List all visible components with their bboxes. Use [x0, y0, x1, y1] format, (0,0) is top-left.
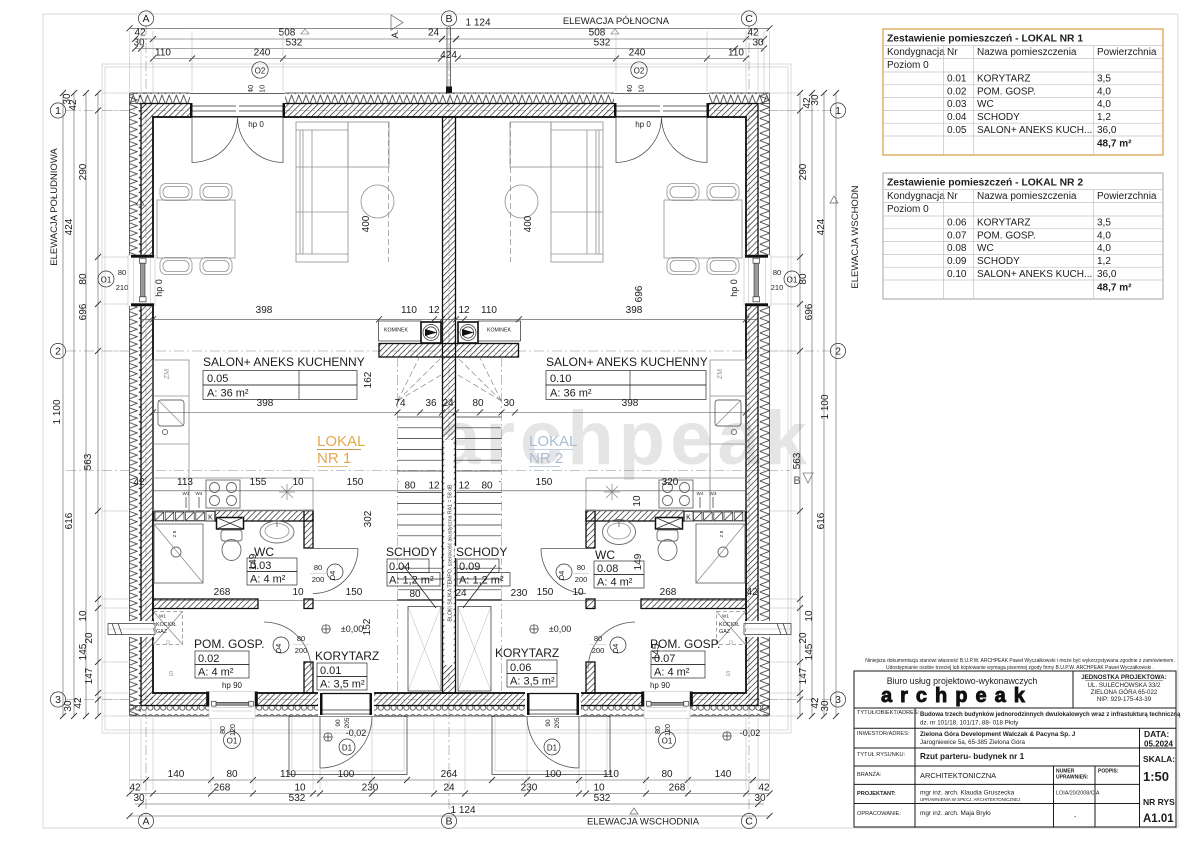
- svg-text:±0,00: ±0,00: [341, 624, 363, 634]
- svg-text:48,7 m²: 48,7 m²: [1097, 283, 1132, 294]
- svg-text:302: 302: [363, 510, 374, 527]
- svg-text:110: 110: [481, 305, 497, 316]
- svg-text:UPRAWNIEŃ:: UPRAWNIEŃ:: [1056, 773, 1089, 781]
- svg-text:2: 2: [55, 346, 61, 358]
- svg-text:1: 1: [55, 105, 61, 117]
- svg-text:POM. GOSP.: POM. GOSP.: [977, 86, 1036, 97]
- svg-text:0.05: 0.05: [207, 373, 228, 385]
- svg-text:3,5: 3,5: [1097, 218, 1111, 229]
- svg-text:30: 30: [820, 700, 831, 712]
- svg-text:290: 290: [78, 163, 89, 180]
- svg-text:SALON+ ANEKS KUCH...: SALON+ ANEKS KUCH...: [977, 269, 1092, 280]
- svg-text:205: 205: [344, 717, 351, 728]
- svg-text:0.05: 0.05: [947, 125, 967, 136]
- svg-text:Nr: Nr: [947, 191, 958, 202]
- svg-text:30: 30: [63, 700, 74, 712]
- svg-text:A: 36 m²: A: 36 m²: [207, 388, 249, 400]
- svg-text:42: 42: [73, 697, 84, 709]
- svg-text:hp 0: hp 0: [154, 279, 164, 297]
- svg-text:ELEWACJA WSCHODNIA: ELEWACJA WSCHODNIA: [587, 817, 700, 828]
- svg-text:hp 90: hp 90: [222, 681, 243, 690]
- svg-text:A: 3,5 m²: A: 3,5 m²: [510, 676, 555, 688]
- svg-text:424: 424: [64, 218, 75, 235]
- svg-text:Zestawienie pomieszczeń - LOKA: Zestawienie pomieszczeń - LOKAL NR 1: [887, 34, 1083, 45]
- svg-text:616: 616: [64, 512, 75, 529]
- svg-text:INWESTOR/ADRES:: INWESTOR/ADRES:: [857, 731, 910, 737]
- svg-text:113: 113: [177, 477, 193, 488]
- svg-text:110: 110: [155, 48, 171, 59]
- svg-text:05.2024: 05.2024: [1144, 740, 1173, 749]
- svg-text:268: 268: [214, 587, 231, 598]
- svg-text:SKALA:: SKALA:: [1143, 754, 1175, 764]
- svg-text:P: P: [729, 640, 733, 647]
- svg-text:A: 3,5 m²: A: 3,5 m²: [320, 679, 365, 691]
- svg-text:±0,00: ±0,00: [549, 624, 571, 634]
- svg-text:0.07: 0.07: [947, 230, 967, 241]
- svg-text:80: 80: [78, 273, 89, 285]
- svg-text:80: 80: [118, 268, 126, 277]
- svg-text:80: 80: [226, 769, 238, 780]
- svg-text:4,0: 4,0: [1097, 230, 1111, 241]
- svg-text:0.02: 0.02: [947, 86, 967, 97]
- svg-text:S: S: [725, 669, 730, 678]
- svg-text:ZM: ZM: [164, 369, 171, 379]
- svg-text:532: 532: [594, 793, 611, 804]
- svg-text:SALON+ ANEKS KUCHENNY: SALON+ ANEKS KUCHENNY: [546, 355, 708, 369]
- svg-text:80: 80: [314, 563, 322, 572]
- svg-text:1 100: 1 100: [820, 394, 831, 419]
- svg-text:PODPIS:: PODPIS:: [1098, 769, 1119, 775]
- svg-text:74: 74: [394, 398, 406, 409]
- svg-text:C: C: [745, 816, 753, 828]
- svg-text:12: 12: [428, 481, 440, 492]
- svg-text:SALON+ ANEKS KUCHENNY: SALON+ ANEKS KUCHENNY: [203, 355, 365, 369]
- svg-text:268: 268: [669, 783, 686, 794]
- svg-text:0.08: 0.08: [597, 563, 618, 575]
- svg-text:532: 532: [289, 793, 306, 804]
- svg-text:696: 696: [804, 303, 815, 320]
- svg-text:0.09: 0.09: [947, 256, 967, 267]
- svg-text:398: 398: [626, 305, 643, 316]
- svg-text:A: 4 m²: A: 4 m²: [198, 667, 234, 679]
- svg-text:A: 4 m²: A: 4 m²: [654, 667, 690, 679]
- svg-text:4,0: 4,0: [1097, 99, 1111, 110]
- svg-text:O2: O2: [255, 67, 266, 76]
- svg-text:10: 10: [292, 477, 304, 488]
- svg-text:mgr inż. arch. Klaudia Gruszec: mgr inż. arch. Klaudia Gruszecka: [920, 790, 1015, 797]
- svg-text:80: 80: [655, 726, 662, 734]
- svg-text:SCHODY: SCHODY: [977, 112, 1020, 123]
- svg-text:80: 80: [481, 481, 493, 492]
- svg-text:C: C: [745, 13, 753, 25]
- svg-text:PROJEKTANT:: PROJEKTANT:: [857, 791, 896, 797]
- svg-text:NR RYS.: NR RYS.: [1143, 797, 1177, 807]
- svg-text:563: 563: [83, 453, 94, 470]
- svg-text:JEDNOSTKA PROJEKTOWA:: JEDNOSTKA PROJEKTOWA:: [1081, 674, 1167, 681]
- svg-text:42: 42: [133, 477, 145, 488]
- svg-text:A1.01: A1.01: [1143, 813, 1174, 825]
- svg-text:110: 110: [728, 48, 744, 59]
- svg-text:36,0: 36,0: [1097, 125, 1117, 136]
- svg-text:150: 150: [346, 587, 363, 598]
- svg-text:Rzut parteru- budynek nr 1: Rzut parteru- budynek nr 1: [920, 752, 1025, 761]
- svg-text:NIP: 929-175-43-39: NIP: 929-175-43-39: [1097, 696, 1152, 703]
- svg-text:150: 150: [347, 477, 364, 488]
- svg-text:145: 145: [804, 643, 815, 660]
- svg-text:80: 80: [409, 589, 421, 600]
- svg-text:80: 80: [773, 268, 781, 277]
- svg-text:80: 80: [661, 769, 673, 780]
- svg-text:268: 268: [214, 783, 231, 794]
- svg-text:W3: W3: [710, 491, 717, 496]
- svg-text:12: 12: [428, 305, 440, 316]
- svg-text:KORYTARZ: KORYTARZ: [977, 218, 1031, 229]
- svg-text:149: 149: [248, 553, 259, 570]
- svg-text:A: A: [142, 816, 149, 828]
- svg-text:532: 532: [286, 38, 303, 49]
- svg-text:90: 90: [545, 719, 552, 727]
- svg-text:147: 147: [84, 667, 95, 684]
- svg-text:20: 20: [84, 632, 95, 644]
- svg-text:10: 10: [632, 495, 643, 507]
- svg-text:Zielona Góra Development Walcz: Zielona Góra Development Walczak & Pacyn…: [920, 731, 1076, 738]
- svg-text:0.06: 0.06: [947, 218, 967, 229]
- svg-text:240: 240: [629, 48, 646, 59]
- svg-text:NR 1: NR 1: [317, 450, 351, 467]
- svg-text:400: 400: [361, 215, 372, 232]
- svg-text:90: 90: [335, 719, 342, 727]
- svg-text:B: B: [445, 816, 452, 828]
- svg-text:398: 398: [622, 398, 639, 409]
- svg-text:hp 0: hp 0: [248, 120, 264, 129]
- svg-text:200: 200: [592, 646, 605, 655]
- svg-text:Jarogniewice 5a, 65-385 Zielon: Jarogniewice 5a, 65-385 Zielona Góra: [920, 739, 1025, 746]
- svg-text:120: 120: [665, 724, 672, 736]
- svg-text:K: K: [686, 515, 691, 522]
- svg-text:42: 42: [746, 587, 758, 598]
- svg-text:W1: W1: [722, 614, 729, 619]
- svg-text:1:50: 1:50: [1143, 769, 1169, 784]
- svg-text:1 100: 1 100: [52, 399, 63, 424]
- svg-text:145: 145: [651, 643, 662, 660]
- svg-text:3: 3: [55, 694, 61, 706]
- svg-text:268: 268: [660, 587, 677, 598]
- svg-text:ZM: ZM: [717, 369, 724, 379]
- svg-text:24: 24: [442, 398, 454, 409]
- svg-text:Udostępnianie osobie trzeciej: Udostępnianie osobie trzeciej lub kopiow…: [886, 665, 1154, 671]
- svg-text:4,0: 4,0: [1097, 86, 1111, 97]
- svg-text:400: 400: [523, 215, 534, 232]
- svg-text:36,0: 36,0: [1097, 269, 1117, 280]
- svg-text:Nr: Nr: [947, 47, 958, 58]
- svg-text:TYTUŁ/OBIEKT/ADRES:: TYTUŁ/OBIEKT/ADRES:: [857, 710, 920, 716]
- svg-text:O1: O1: [101, 276, 112, 285]
- svg-text:A: 36 m²: A: 36 m²: [550, 388, 592, 400]
- svg-text:10: 10: [593, 783, 605, 794]
- svg-text:Kondygnacja: Kondygnacja: [887, 191, 945, 202]
- svg-text:0.02: 0.02: [198, 653, 219, 665]
- svg-text:KOMINEK: KOMINEK: [384, 328, 408, 334]
- svg-text:48,7 m²: 48,7 m²: [1097, 139, 1132, 150]
- svg-text:150: 150: [536, 477, 553, 488]
- svg-text:42: 42: [758, 783, 770, 794]
- svg-text:0.10: 0.10: [550, 373, 571, 385]
- svg-text:D4: D4: [611, 644, 620, 654]
- svg-text:POM. GOSP.: POM. GOSP.: [194, 637, 264, 651]
- svg-text:LOIA/20/2008/CiA: LOIA/20/2008/CiA: [1056, 791, 1100, 797]
- svg-text:Z 8: Z 8: [172, 530, 177, 537]
- svg-text:mgr inż. arch. Maja Bryło: mgr inż. arch. Maja Bryło: [920, 810, 991, 817]
- svg-text:10: 10: [804, 610, 815, 622]
- svg-text:240: 240: [254, 48, 271, 59]
- svg-text:210: 210: [116, 283, 129, 292]
- svg-text:D4: D4: [557, 571, 566, 581]
- svg-text:POM. GOSP.: POM. GOSP.: [977, 230, 1036, 241]
- svg-text:A: 4 m²: A: 4 m²: [250, 574, 286, 586]
- svg-text:424: 424: [816, 218, 827, 235]
- svg-text:O2: O2: [634, 67, 645, 76]
- svg-text:80: 80: [594, 634, 602, 643]
- svg-text:B: B: [445, 13, 452, 25]
- svg-text:BLOKI SILIKA TEMPO. szerokość: BLOKI SILIKA TEMPO. szerokość akustyczna…: [448, 484, 454, 622]
- svg-text:10: 10: [78, 610, 89, 622]
- svg-text:ZIELONA GÓRA 65-022: ZIELONA GÓRA 65-022: [1091, 689, 1158, 696]
- svg-text:12: 12: [458, 481, 470, 492]
- svg-text:0.08: 0.08: [947, 243, 967, 254]
- svg-text:42: 42: [68, 99, 79, 111]
- svg-text:UPRAWNIENIA W SPECJ. ARCHITEKT: UPRAWNIENIA W SPECJ. ARCHITEKTONICZNEJ: [920, 797, 1020, 802]
- svg-text:80: 80: [297, 634, 305, 643]
- svg-text:SCHODY: SCHODY: [386, 545, 437, 559]
- svg-text:1 124: 1 124: [465, 18, 490, 29]
- svg-text:KORYTARZ: KORYTARZ: [977, 74, 1031, 85]
- svg-text:Zestawienie pomieszczeń - LOKA: Zestawienie pomieszczeń - LOKAL NR 2: [887, 178, 1083, 189]
- svg-text:398: 398: [256, 305, 273, 316]
- svg-text:Kondygnacja: Kondygnacja: [887, 47, 945, 58]
- svg-text:WC: WC: [977, 243, 994, 254]
- svg-text:LOKAL: LOKAL: [317, 433, 365, 450]
- svg-text:0.01: 0.01: [947, 74, 967, 85]
- svg-text:TYTUŁ RYSUNKU:: TYTUŁ RYSUNKU:: [857, 752, 906, 758]
- svg-text:36: 36: [425, 398, 437, 409]
- svg-text:80: 80: [472, 398, 484, 409]
- svg-text:GAZ: GAZ: [156, 629, 168, 635]
- svg-text:320: 320: [662, 477, 679, 488]
- svg-text:24: 24: [428, 28, 440, 39]
- svg-text:140: 140: [168, 769, 185, 780]
- svg-text:GAZ: GAZ: [719, 629, 731, 635]
- svg-text:W4: W4: [697, 491, 704, 496]
- svg-text:150: 150: [537, 587, 554, 598]
- svg-text:KOCIOŁ: KOCIOŁ: [156, 622, 176, 628]
- svg-text:K: K: [208, 515, 213, 522]
- svg-text:B: B: [793, 475, 800, 487]
- svg-text:Budowa trzech budynków jednoro: Budowa trzech budynków jednorodzinnych d…: [920, 712, 1181, 718]
- svg-text:616: 616: [816, 512, 827, 529]
- svg-text:162: 162: [363, 371, 374, 388]
- svg-text:D1: D1: [342, 744, 353, 753]
- svg-text:ELEWACJA WSCHODN: ELEWACJA WSCHODN: [850, 185, 861, 288]
- svg-text:10: 10: [292, 587, 304, 598]
- svg-text:24: 24: [443, 783, 455, 794]
- svg-text:696: 696: [78, 303, 89, 320]
- svg-text:42: 42: [802, 97, 813, 109]
- svg-text:230: 230: [362, 783, 379, 794]
- svg-text:KORYTARZ: KORYTARZ: [495, 646, 559, 660]
- svg-text:30: 30: [503, 398, 515, 409]
- svg-text:398: 398: [257, 398, 274, 409]
- svg-text:1,2: 1,2: [1097, 256, 1111, 267]
- svg-text:Powierzchnia: Powierzchnia: [1097, 47, 1157, 58]
- svg-text:A.: A.: [390, 30, 400, 39]
- svg-text:696: 696: [634, 285, 645, 302]
- svg-text:W3: W3: [183, 491, 190, 496]
- svg-text:155: 155: [250, 477, 267, 488]
- svg-text:200: 200: [575, 575, 588, 584]
- svg-text:205: 205: [554, 717, 561, 728]
- svg-text:OPRACOWANIE:: OPRACOWANIE:: [857, 811, 901, 817]
- svg-text:dz. nr 101/18, 101/17, 88- 018: dz. nr 101/18, 101/17, 88- 018 Płoty: [920, 720, 1019, 727]
- svg-text:SALON+ ANEKS KUCH...: SALON+ ANEKS KUCH...: [977, 125, 1092, 136]
- svg-text:290: 290: [798, 163, 809, 180]
- svg-text:3,5: 3,5: [1097, 74, 1111, 85]
- svg-text:BRANŻA:: BRANŻA:: [857, 771, 882, 778]
- svg-text:Niniejsza dokumentacja stanowi: Niniejsza dokumentacja stanowi własność …: [865, 658, 1174, 664]
- svg-text:120: 120: [230, 724, 237, 736]
- svg-text:W1: W1: [159, 614, 166, 619]
- svg-text:W4: W4: [196, 491, 203, 496]
- svg-text:D4: D4: [328, 571, 337, 581]
- svg-text:80: 80: [220, 726, 227, 734]
- svg-text:ARCHITEKTONICZNA: ARCHITEKTONICZNA: [920, 771, 996, 780]
- svg-text:KOCIOŁ: KOCIOŁ: [719, 622, 739, 628]
- svg-text:24: 24: [455, 588, 467, 599]
- svg-text:P: P: [166, 640, 170, 647]
- svg-text:110: 110: [401, 305, 417, 316]
- svg-text:532: 532: [594, 38, 611, 49]
- svg-text:0.10: 0.10: [947, 269, 967, 280]
- svg-text:200: 200: [312, 575, 325, 584]
- svg-text:NR 2: NR 2: [529, 450, 563, 467]
- svg-text:O1: O1: [227, 737, 238, 746]
- svg-text:0.04: 0.04: [389, 561, 410, 573]
- svg-text:SCHODY: SCHODY: [977, 256, 1020, 267]
- svg-text:DATA:: DATA:: [1144, 729, 1169, 739]
- svg-text:12: 12: [458, 305, 470, 316]
- svg-text:80: 80: [404, 481, 416, 492]
- svg-text:KOMINEK: KOMINEK: [487, 328, 511, 334]
- svg-text:20: 20: [798, 632, 809, 644]
- svg-text:A: 4 m²: A: 4 m²: [597, 577, 633, 589]
- svg-text:563: 563: [792, 452, 803, 469]
- svg-text:Z 8: Z 8: [719, 530, 724, 537]
- svg-text:152: 152: [362, 618, 373, 635]
- svg-text:Nazwa pomieszczenia: Nazwa pomieszczenia: [977, 47, 1077, 58]
- svg-text:hp 90: hp 90: [650, 681, 671, 690]
- svg-text:0.04: 0.04: [947, 112, 967, 123]
- svg-text:Poziom 0: Poziom 0: [887, 204, 929, 215]
- svg-text:KORYTARZ: KORYTARZ: [315, 649, 379, 663]
- svg-text:D4: D4: [274, 644, 283, 654]
- svg-text:147: 147: [798, 667, 809, 684]
- svg-text:210: 210: [771, 283, 784, 292]
- svg-text:ELEWACJA PÓŁNOCNA: ELEWACJA PÓŁNOCNA: [563, 16, 670, 27]
- svg-text:A: 1,2 m²: A: 1,2 m²: [459, 575, 504, 587]
- svg-text:1 124: 1 124: [450, 805, 475, 816]
- svg-text:Poziom 0: Poziom 0: [887, 60, 929, 71]
- svg-text:O1: O1: [787, 276, 798, 285]
- svg-text:4,0: 4,0: [1097, 243, 1111, 254]
- svg-text:archpeak: archpeak: [881, 685, 1033, 707]
- svg-text:A: A: [142, 13, 149, 25]
- svg-text:hp 0: hp 0: [729, 279, 739, 297]
- svg-text:Nazwa pomieszczenia: Nazwa pomieszczenia: [977, 191, 1077, 202]
- svg-text:WC: WC: [977, 99, 994, 110]
- svg-text:WC: WC: [595, 548, 615, 562]
- svg-text:230: 230: [511, 588, 528, 599]
- svg-text:145: 145: [78, 643, 89, 660]
- svg-text:200: 200: [295, 646, 308, 655]
- svg-text:O1: O1: [662, 737, 673, 746]
- svg-text:1,2: 1,2: [1097, 112, 1111, 123]
- svg-text:hp 0: hp 0: [635, 120, 651, 129]
- svg-text:80: 80: [577, 563, 585, 572]
- svg-text:10: 10: [572, 587, 584, 598]
- svg-text:424: 424: [440, 50, 457, 61]
- svg-text:SCHODY: SCHODY: [456, 545, 507, 559]
- svg-text:Powierzchnia: Powierzchnia: [1097, 191, 1157, 202]
- svg-text:0.03: 0.03: [947, 99, 967, 110]
- svg-text:0.06: 0.06: [510, 662, 531, 674]
- svg-text:ELEWACJA POŁUDNIOWA: ELEWACJA POŁUDNIOWA: [49, 148, 60, 266]
- svg-text:0.01: 0.01: [320, 665, 341, 677]
- svg-text:140: 140: [715, 769, 732, 780]
- svg-text:264: 264: [441, 769, 458, 780]
- svg-text:LOKAL: LOKAL: [529, 433, 577, 450]
- svg-text:-0,02: -0,02: [740, 728, 761, 738]
- svg-text:D1: D1: [547, 744, 558, 753]
- svg-text:10: 10: [294, 783, 306, 794]
- svg-text:UL. SULECHOWSKA 33/2: UL. SULECHOWSKA 33/2: [1088, 682, 1161, 689]
- svg-text:0.09: 0.09: [459, 561, 480, 573]
- svg-text:-0,02: -0,02: [346, 728, 367, 738]
- svg-text:A: 1,2 m²: A: 1,2 m²: [389, 575, 434, 587]
- svg-text:149: 149: [633, 553, 644, 570]
- svg-text:S: S: [168, 669, 173, 678]
